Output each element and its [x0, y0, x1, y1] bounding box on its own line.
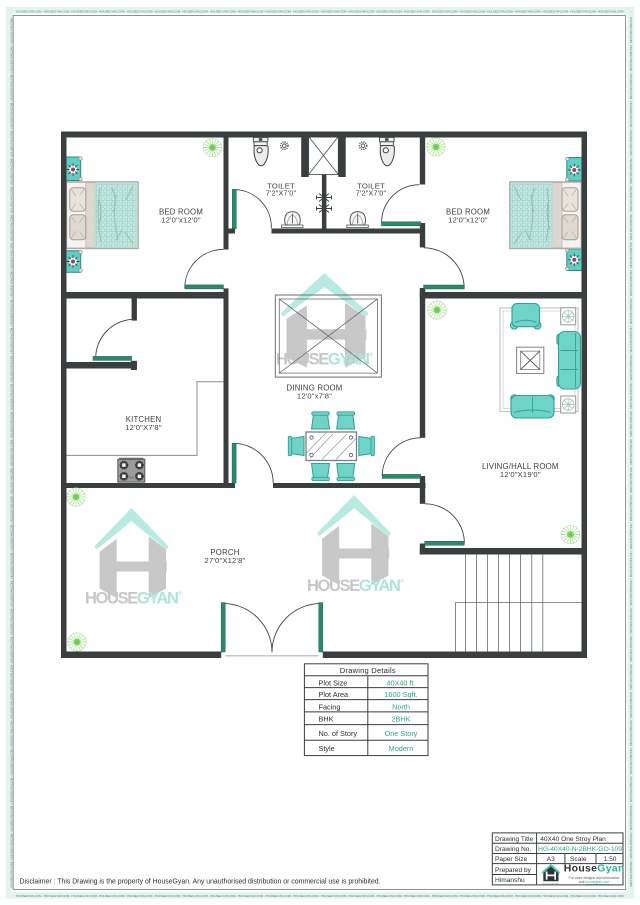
- svg-text:12'0"x12'0": 12'0"x12'0": [161, 216, 201, 225]
- svg-text:Drawing No.: Drawing No.: [495, 846, 531, 853]
- svg-text:Style: Style: [319, 744, 335, 753]
- svg-text:1600 Sqft.: 1600 Sqft.: [384, 690, 417, 699]
- svg-text:A3: A3: [547, 856, 555, 863]
- svg-text:Modern: Modern: [389, 744, 414, 753]
- svg-text:visit housegyan.com: visit housegyan.com: [579, 880, 610, 884]
- svg-text:Facing: Facing: [319, 702, 341, 711]
- svg-text:HouseGyan: HouseGyan: [564, 864, 625, 875]
- svg-text:HOUSEGYAN.COM - HOUSEGYAN.COM: HOUSEGYAN.COM - HOUSEGYAN.COM - HOUSEGYA…: [629, 17, 633, 887]
- svg-text:12'0"X7'8": 12'0"X7'8": [125, 423, 162, 432]
- svg-text:One Story: One Story: [385, 729, 418, 738]
- svg-text:HG-40X40-N-2BHK-GO-109: HG-40X40-N-2BHK-GO-109: [538, 846, 622, 853]
- svg-text:Scale: Scale: [570, 856, 587, 863]
- svg-text:7'2"X7'0": 7'2"X7'0": [266, 189, 297, 198]
- svg-text:No. of Story: No. of Story: [319, 729, 358, 738]
- svg-text:12'0"x7'8": 12'0"x7'8": [297, 392, 332, 401]
- svg-text:HOUSEGYAN.COM - HOUSEGYAN.COM: HOUSEGYAN.COM - HOUSEGYAN.COM - HOUSEGYA…: [16, 10, 624, 14]
- svg-text:27'0"X12'8": 27'0"X12'8": [205, 556, 246, 565]
- svg-text:HOUSEGYAN.COM - HOUSEGYAN.COM: HOUSEGYAN.COM - HOUSEGYAN.COM - HOUSEGYA…: [16, 894, 624, 898]
- svg-text:Plot Size: Plot Size: [319, 678, 348, 687]
- svg-text:Plot Area: Plot Area: [319, 690, 350, 699]
- svg-text:HOUSEGYAN: HOUSEGYAN: [543, 883, 560, 886]
- svg-text:40X40 One Stroy Plan: 40X40 One Stroy Plan: [540, 836, 606, 843]
- svg-text:1:50: 1:50: [604, 856, 617, 863]
- svg-text:12'0"X19'0": 12'0"X19'0": [500, 470, 541, 479]
- svg-text:North: North: [392, 702, 410, 711]
- svg-text:HOUSEGYAN®: HOUSEGYAN®: [307, 577, 405, 595]
- svg-text:40X40 ft.: 40X40 ft.: [386, 678, 415, 687]
- svg-text:HOUSEGYAN®: HOUSEGYAN®: [85, 590, 183, 608]
- svg-text:Paper Size: Paper Size: [495, 856, 528, 863]
- svg-text:Disclaimer : This Drawing is t: Disclaimer : This Drawing is the propert…: [20, 879, 381, 886]
- svg-text:BHK: BHK: [319, 715, 334, 724]
- svg-text:7'2"X7'0": 7'2"X7'0": [356, 189, 387, 198]
- svg-text:Drawing Details: Drawing Details: [340, 666, 396, 675]
- svg-text:12'0"x12'0": 12'0"x12'0": [448, 216, 488, 225]
- svg-text:2BHK: 2BHK: [391, 715, 410, 724]
- svg-text:Drawing Title: Drawing Title: [495, 836, 533, 843]
- svg-text:Himanshu: Himanshu: [495, 877, 525, 884]
- svg-text:Prepared by: Prepared by: [495, 867, 532, 874]
